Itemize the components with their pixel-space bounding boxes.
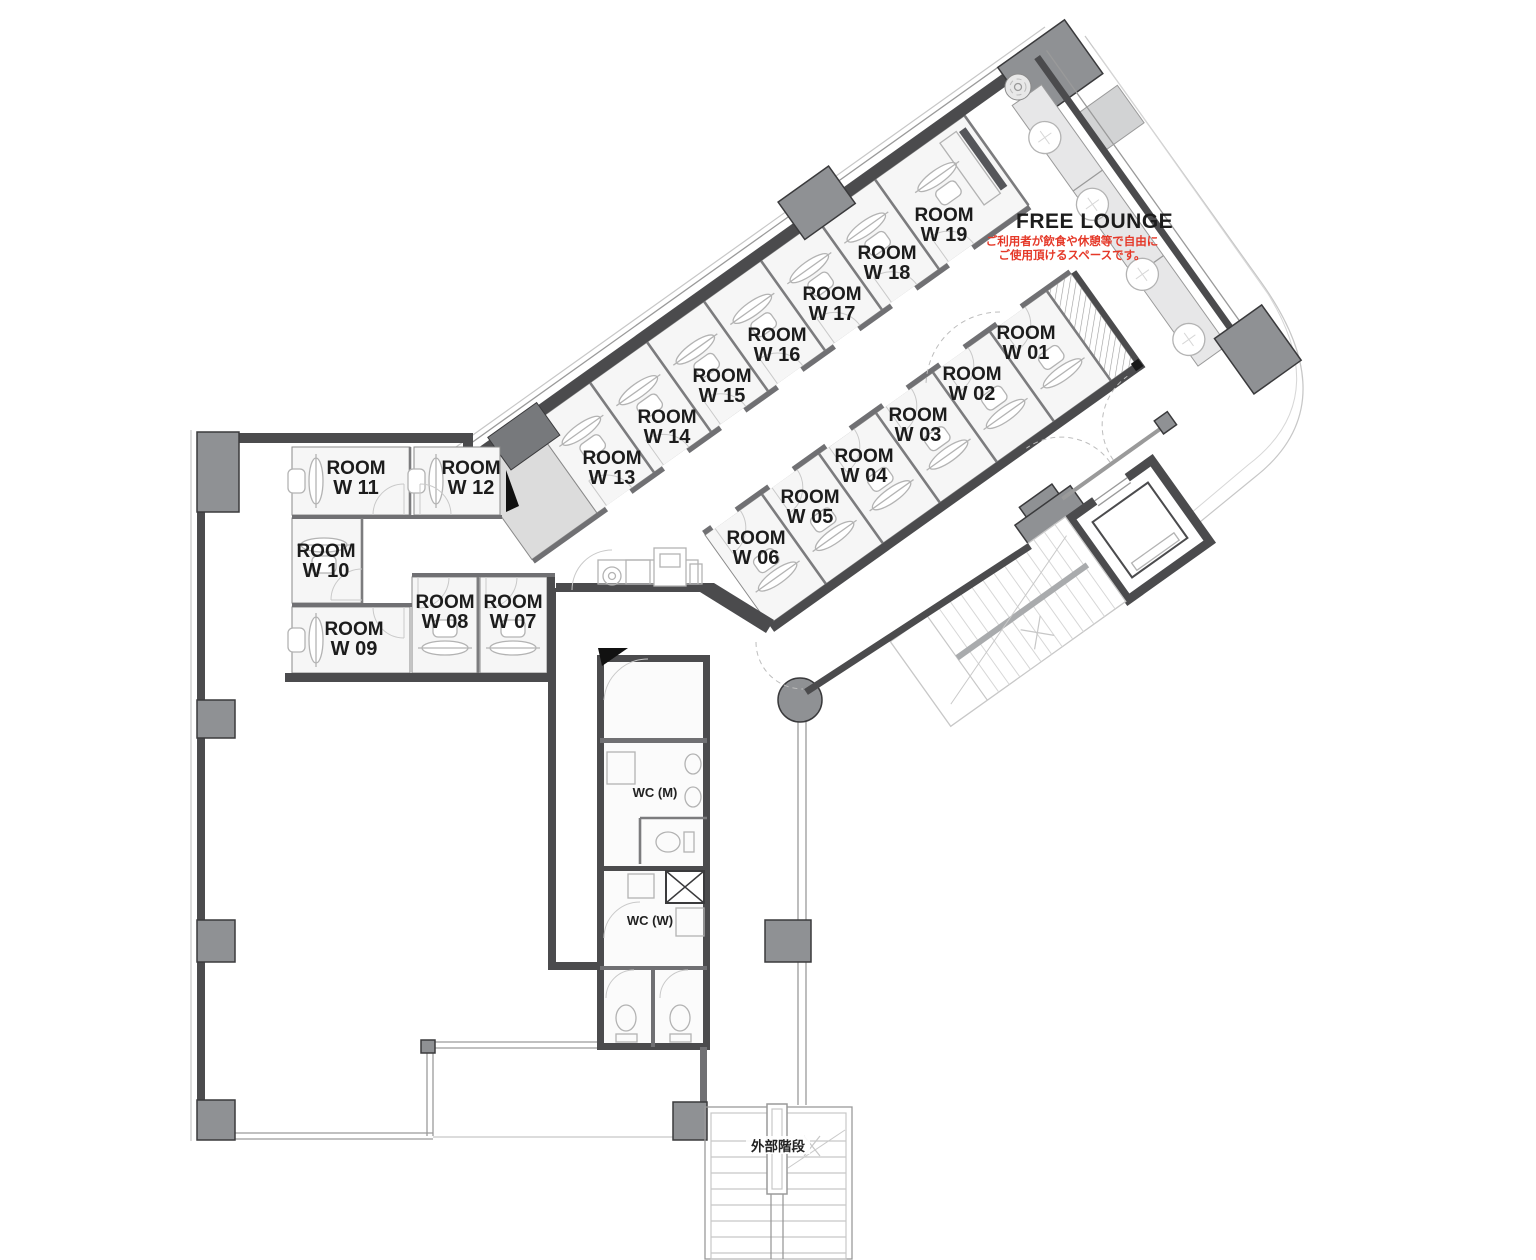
room-label-w19: ROOMW 19 [914,205,973,246]
column [197,1100,235,1140]
room-label-w05: ROOMW 05 [780,487,839,528]
room-label-w14: ROOMW 14 [637,407,696,448]
room-label-w01: ROOMW 01 [996,323,1055,364]
room-label-w16: ROOMW 16 [747,325,806,366]
appliance-icon [690,564,702,584]
room-label-w12: ROOMW 12 [441,458,500,499]
room-label-w09: ROOMW 09 [324,619,383,660]
column [421,1040,435,1053]
west-wall [197,433,205,1138]
column [197,432,239,512]
kitchenette-counter [598,548,702,586]
free-lounge-note-2: ご使用頂けるスペースです。 [999,248,1146,262]
column [673,1102,707,1140]
room-label-w17: ROOMW 17 [802,284,861,325]
external-stairs-label: 外部階段 [751,1138,805,1154]
column [765,920,811,962]
room-label-w07: ROOMW 07 [483,592,542,633]
wc-men-label: WC (M) [633,785,678,800]
room-label-w11: ROOMW 11 [326,458,385,499]
free-lounge-title: FREE LOUNGE [1016,210,1173,233]
room-label-w08: ROOMW 08 [415,592,474,633]
floor-plan-page: WC (M) WC (W) [0,0,1536,1260]
floor-plan-drawing: WC (M) WC (W) [0,0,1536,1260]
appliance-icon [626,560,650,584]
appliance-icon [603,567,621,585]
column [197,920,235,962]
room-label-w03: ROOMW 03 [888,405,947,446]
plant-icon [1005,74,1031,100]
room-label-w02: ROOMW 02 [942,364,1001,405]
room-label-w13: ROOMW 13 [582,448,641,489]
cluster-south-wall [285,673,555,682]
room-label-w06: ROOMW 06 [726,528,785,569]
room-label-w04: ROOMW 04 [834,446,893,487]
room-label-w18: ROOMW 18 [857,243,916,284]
free-lounge-note-1: ご利用者が飲食や休憩等で自由に [986,234,1159,248]
external-staircase: 外部階段 [705,1104,852,1259]
room-label-w15: ROOMW 15 [692,366,751,407]
lounge-corner-pad [1080,85,1144,149]
column [197,700,235,738]
wc-women-label: WC (W) [627,913,673,928]
wc-tower: WC (M) WC (W) [598,648,707,1103]
room-label-w10: ROOMW 10 [296,541,355,582]
